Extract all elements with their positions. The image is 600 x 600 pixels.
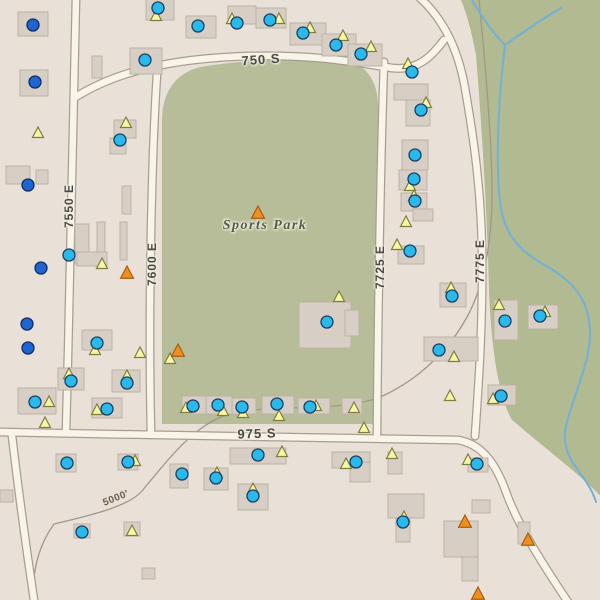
marker-yellow-triangle[interactable] xyxy=(39,417,50,428)
marker-cyan-point[interactable] xyxy=(471,458,483,470)
marker-cyan-point[interactable] xyxy=(415,104,427,116)
marker-cyan-point[interactable] xyxy=(121,377,133,389)
marker-yellow-triangle[interactable] xyxy=(444,390,455,401)
marker-cyan-point[interactable] xyxy=(406,66,418,78)
marker-cyan-point[interactable] xyxy=(231,17,243,29)
marker-blue-point[interactable] xyxy=(22,342,34,354)
marker-cyan-point[interactable] xyxy=(409,195,421,207)
marker-cyan-point[interactable] xyxy=(408,173,420,185)
marker-cyan-point[interactable] xyxy=(91,337,103,349)
road xyxy=(12,436,34,600)
building-footprint xyxy=(0,490,13,502)
marker-cyan-point[interactable] xyxy=(76,526,88,538)
marker-blue-point[interactable] xyxy=(21,318,33,330)
marker-cyan-point[interactable] xyxy=(397,516,409,528)
marker-orange-triangle[interactable] xyxy=(472,587,485,599)
marker-cyan-point[interactable] xyxy=(499,315,511,327)
marker-cyan-point[interactable] xyxy=(152,2,164,14)
marker-orange-triangle[interactable] xyxy=(121,266,134,278)
map-graphics-layer xyxy=(0,0,600,600)
marker-blue-point[interactable] xyxy=(35,262,47,274)
marker-blue-point[interactable] xyxy=(22,179,34,191)
building-footprint xyxy=(462,557,478,581)
marker-cyan-point[interactable] xyxy=(534,310,546,322)
marker-cyan-point[interactable] xyxy=(404,245,416,257)
marker-cyan-point[interactable] xyxy=(446,290,458,302)
marker-cyan-point[interactable] xyxy=(350,456,362,468)
building-footprint xyxy=(120,222,127,260)
building-footprint xyxy=(472,500,490,513)
marker-cyan-point[interactable] xyxy=(355,48,367,60)
marker-cyan-point[interactable] xyxy=(321,316,333,328)
marker-blue-point[interactable] xyxy=(29,76,41,88)
marker-cyan-point[interactable] xyxy=(271,398,283,410)
marker-cyan-point[interactable] xyxy=(252,449,264,461)
building-footprint xyxy=(36,170,48,184)
marker-cyan-point[interactable] xyxy=(29,396,41,408)
marker-cyan-point[interactable] xyxy=(63,249,75,261)
map-canvas[interactable]: 750 S 975 S 7550 E 7600 E 7725 E 7775 E … xyxy=(0,0,600,600)
building-footprint xyxy=(413,209,433,221)
building-footprint xyxy=(345,310,359,336)
marker-yellow-triangle[interactable] xyxy=(400,216,411,227)
marker-cyan-point[interactable] xyxy=(61,457,73,469)
building-footprint xyxy=(122,186,131,214)
marker-cyan-point[interactable] xyxy=(304,401,316,413)
marker-cyan-point[interactable] xyxy=(236,401,248,413)
building-footprint xyxy=(92,56,102,78)
building-footprint xyxy=(142,568,155,579)
marker-cyan-point[interactable] xyxy=(297,27,309,39)
marker-cyan-point[interactable] xyxy=(264,14,276,26)
marker-cyan-point[interactable] xyxy=(495,390,507,402)
marker-cyan-point[interactable] xyxy=(210,472,222,484)
marker-cyan-point[interactable] xyxy=(101,403,113,415)
marker-blue-point[interactable] xyxy=(27,19,39,31)
marker-cyan-point[interactable] xyxy=(409,149,421,161)
marker-cyan-point[interactable] xyxy=(192,20,204,32)
marker-cyan-point[interactable] xyxy=(65,375,77,387)
marker-cyan-point[interactable] xyxy=(114,134,126,146)
sports-park-area xyxy=(162,57,378,424)
building-footprint xyxy=(394,84,428,100)
marker-cyan-point[interactable] xyxy=(212,399,224,411)
marker-cyan-point[interactable] xyxy=(330,39,342,51)
marker-yellow-triangle[interactable] xyxy=(391,239,402,250)
marker-cyan-point[interactable] xyxy=(176,468,188,480)
marker-cyan-point[interactable] xyxy=(122,456,134,468)
marker-cyan-point[interactable] xyxy=(187,400,199,412)
marker-yellow-triangle[interactable] xyxy=(134,347,145,358)
marker-yellow-triangle[interactable] xyxy=(32,127,43,138)
marker-cyan-point[interactable] xyxy=(433,344,445,356)
marker-cyan-point[interactable] xyxy=(247,490,259,502)
marker-cyan-point[interactable] xyxy=(139,54,151,66)
